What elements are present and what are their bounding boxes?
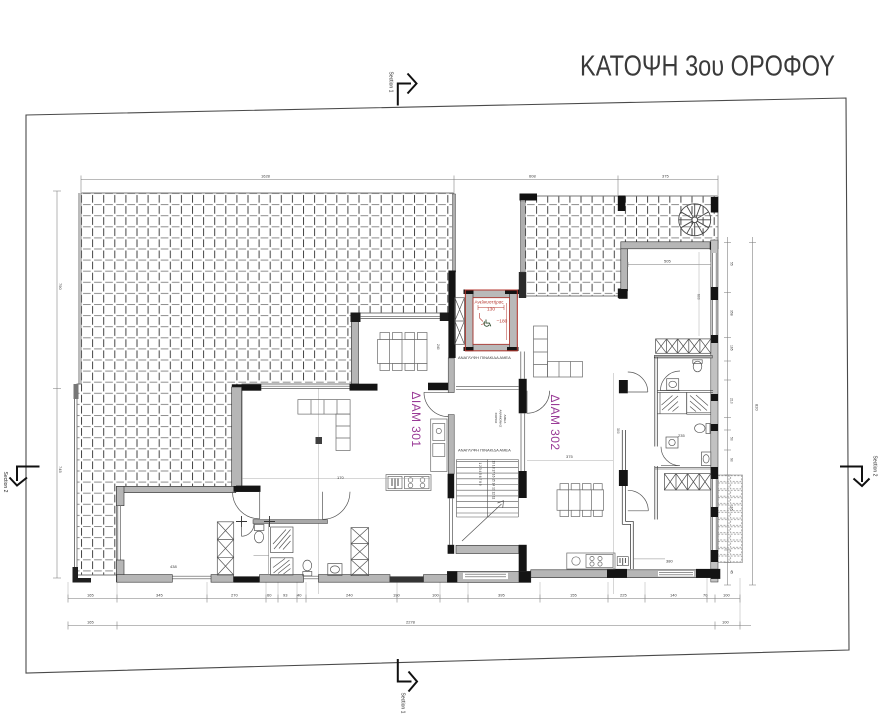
svg-text:45: 45 bbox=[730, 570, 734, 574]
svg-text:60: 60 bbox=[267, 593, 272, 598]
svg-text:2278: 2278 bbox=[406, 620, 416, 625]
svg-text:70: 70 bbox=[703, 593, 708, 598]
svg-text:380: 380 bbox=[666, 559, 673, 564]
svg-text:Section 1: Section 1 bbox=[400, 693, 406, 714]
svg-text:ΑΝΑΓΛΥΦΗ ΠΙΝΑΚΙΔΑ ΑΜΕΑ: ΑΝΑΓΛΥΦΗ ΠΙΝΑΚΙΔΑ ΑΜΕΑ bbox=[458, 355, 511, 360]
svg-text:ΑΜΕΑ: ΑΜΕΑ bbox=[503, 415, 507, 425]
svg-text:608: 608 bbox=[529, 174, 536, 179]
svg-text:1628: 1628 bbox=[261, 174, 271, 179]
svg-text:225: 225 bbox=[620, 593, 627, 598]
svg-text:Section 1: Section 1 bbox=[388, 72, 394, 93]
svg-text:55: 55 bbox=[730, 262, 734, 266]
svg-text:745: 745 bbox=[58, 466, 63, 473]
svg-text:438: 438 bbox=[170, 564, 177, 569]
svg-text:ΑΝΑΓΛΥΦΗ ΠΙΝΑΚΙΔΑ ΑΜΕΑ: ΑΝΑΓΛΥΦΗ ΠΙΝΑΚΙΔΑ ΑΜΕΑ bbox=[458, 448, 511, 453]
svg-text:505: 505 bbox=[664, 259, 671, 264]
svg-text:155: 155 bbox=[570, 593, 577, 598]
svg-text:1 2 3 4 5 6 7 8 9: 1 2 3 4 5 6 7 8 9 bbox=[478, 463, 482, 486]
svg-text:170: 170 bbox=[337, 475, 344, 480]
svg-text:375: 375 bbox=[662, 174, 669, 179]
svg-text:90: 90 bbox=[730, 458, 734, 462]
svg-text:−180: −180 bbox=[497, 319, 508, 325]
svg-text:358: 358 bbox=[730, 310, 734, 316]
svg-text:130: 130 bbox=[487, 307, 495, 313]
svg-text:210: 210 bbox=[730, 398, 734, 404]
svg-text:50: 50 bbox=[730, 437, 734, 441]
svg-text:165: 165 bbox=[730, 345, 734, 351]
svg-text:100: 100 bbox=[722, 620, 729, 625]
svg-text:Section 2: Section 2 bbox=[872, 456, 878, 477]
svg-text:Ανελκυστήρας: Ανελκυστήρας bbox=[475, 299, 505, 305]
svg-text:Section 2: Section 2 bbox=[2, 472, 8, 493]
svg-text:235: 235 bbox=[678, 433, 685, 438]
svg-text:345: 345 bbox=[156, 593, 163, 598]
svg-text:395: 395 bbox=[498, 593, 505, 598]
svg-text:240: 240 bbox=[346, 593, 353, 598]
svg-text:820: 820 bbox=[755, 404, 760, 411]
svg-text:165: 165 bbox=[87, 593, 94, 598]
svg-text:600: 600 bbox=[697, 294, 701, 300]
svg-text:270: 270 bbox=[231, 593, 238, 598]
svg-text:165: 165 bbox=[87, 620, 94, 625]
svg-text:100: 100 bbox=[432, 593, 439, 598]
svg-text:240: 240 bbox=[436, 344, 440, 350]
svg-text:ΧΩΡΟΣ: ΧΩΡΟΣ bbox=[494, 413, 498, 424]
svg-text:ΚΑΤΟΨΗ 3ου ΟΡΟΦΟΥ: ΚΑΤΟΨΗ 3ου ΟΡΟΦΟΥ bbox=[580, 51, 835, 83]
svg-text:40: 40 bbox=[297, 593, 302, 598]
svg-text:93: 93 bbox=[283, 593, 288, 598]
svg-text:140: 140 bbox=[670, 593, 677, 598]
svg-text:ΔΙΑΜ 301: ΔΙΑΜ 301 bbox=[409, 392, 423, 448]
svg-text:300: 300 bbox=[616, 428, 620, 434]
svg-text:100: 100 bbox=[723, 593, 730, 598]
svg-text:ΔΙΑΜ 302: ΔΙΑΜ 302 bbox=[548, 395, 562, 451]
svg-text:375: 375 bbox=[566, 454, 573, 459]
svg-text:19 18 17 16 15 14 13 12 11: 19 18 17 16 15 14 13 12 11 bbox=[492, 461, 496, 500]
svg-text:ΑΝΑΜΟΝΗΣ: ΑΝΑΜΟΝΗΣ bbox=[499, 410, 503, 428]
svg-text:190: 190 bbox=[393, 593, 400, 598]
svg-text:790: 790 bbox=[58, 283, 63, 290]
